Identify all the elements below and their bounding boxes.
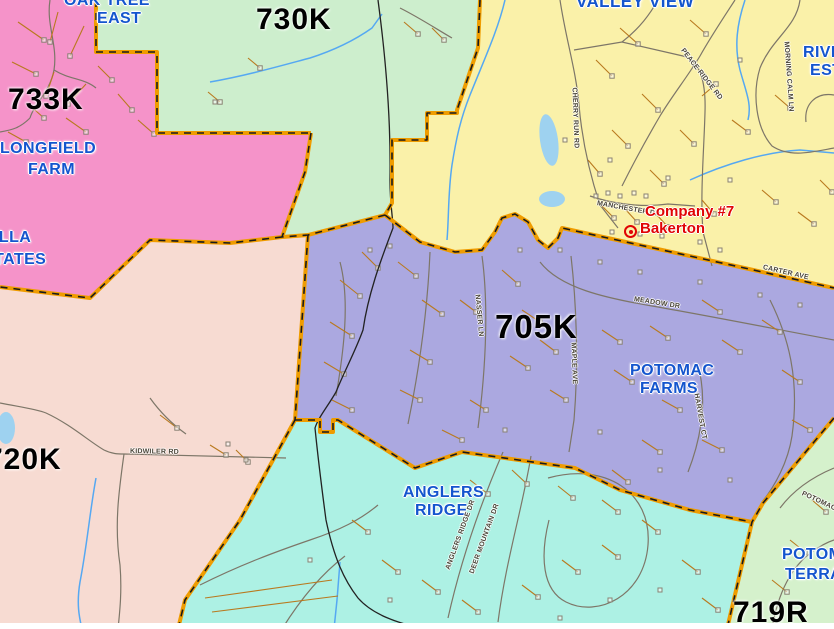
bottom-margin: [0, 623, 834, 629]
district-map[interactable]: 733K 730K 705K 720K 719R OAK TREE EAST V…: [0, 0, 834, 629]
map-canvas: [0, 0, 834, 629]
fire-station-marker[interactable]: [624, 225, 637, 238]
